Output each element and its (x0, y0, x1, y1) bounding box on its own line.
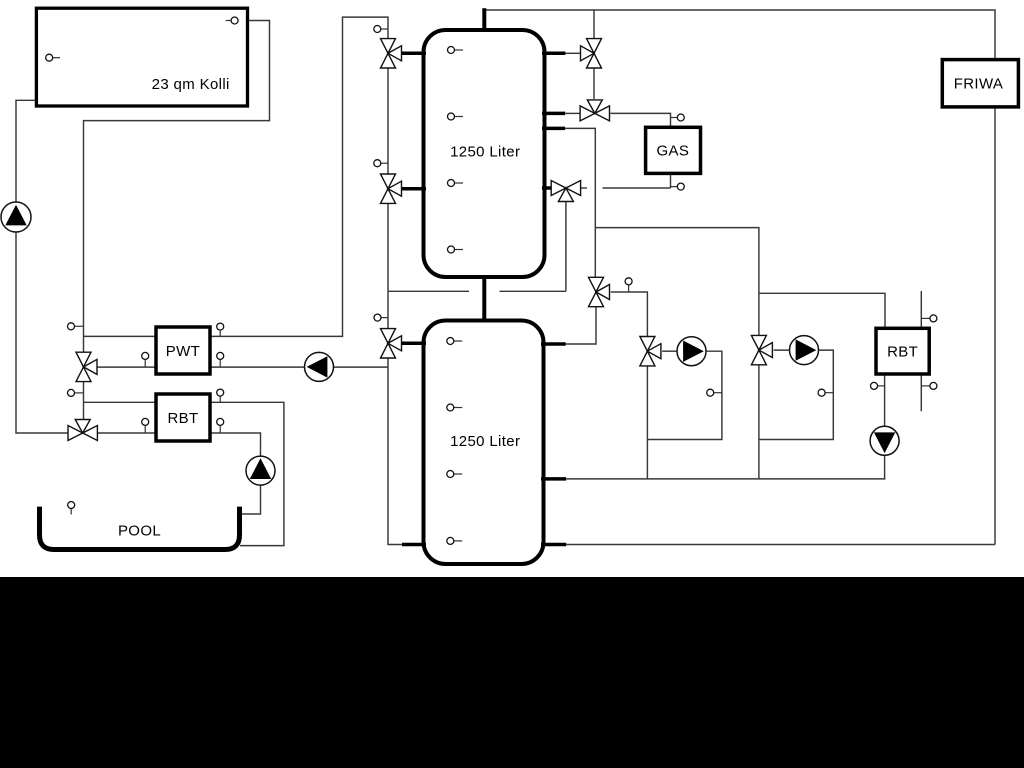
svg-text:1250 Liter: 1250 Liter (450, 433, 520, 450)
svg-text:POOL: POOL (118, 522, 161, 539)
svg-text:1250 Liter: 1250 Liter (450, 144, 520, 161)
svg-text:RBT: RBT (167, 410, 198, 427)
svg-text:GAS: GAS (657, 143, 690, 160)
svg-text:PWT: PWT (166, 343, 200, 360)
svg-text:FRIWA: FRIWA (954, 76, 1004, 93)
svg-text:23 qm Kolli: 23 qm Kolli (152, 76, 230, 93)
svg-text:RBT: RBT (887, 344, 918, 361)
